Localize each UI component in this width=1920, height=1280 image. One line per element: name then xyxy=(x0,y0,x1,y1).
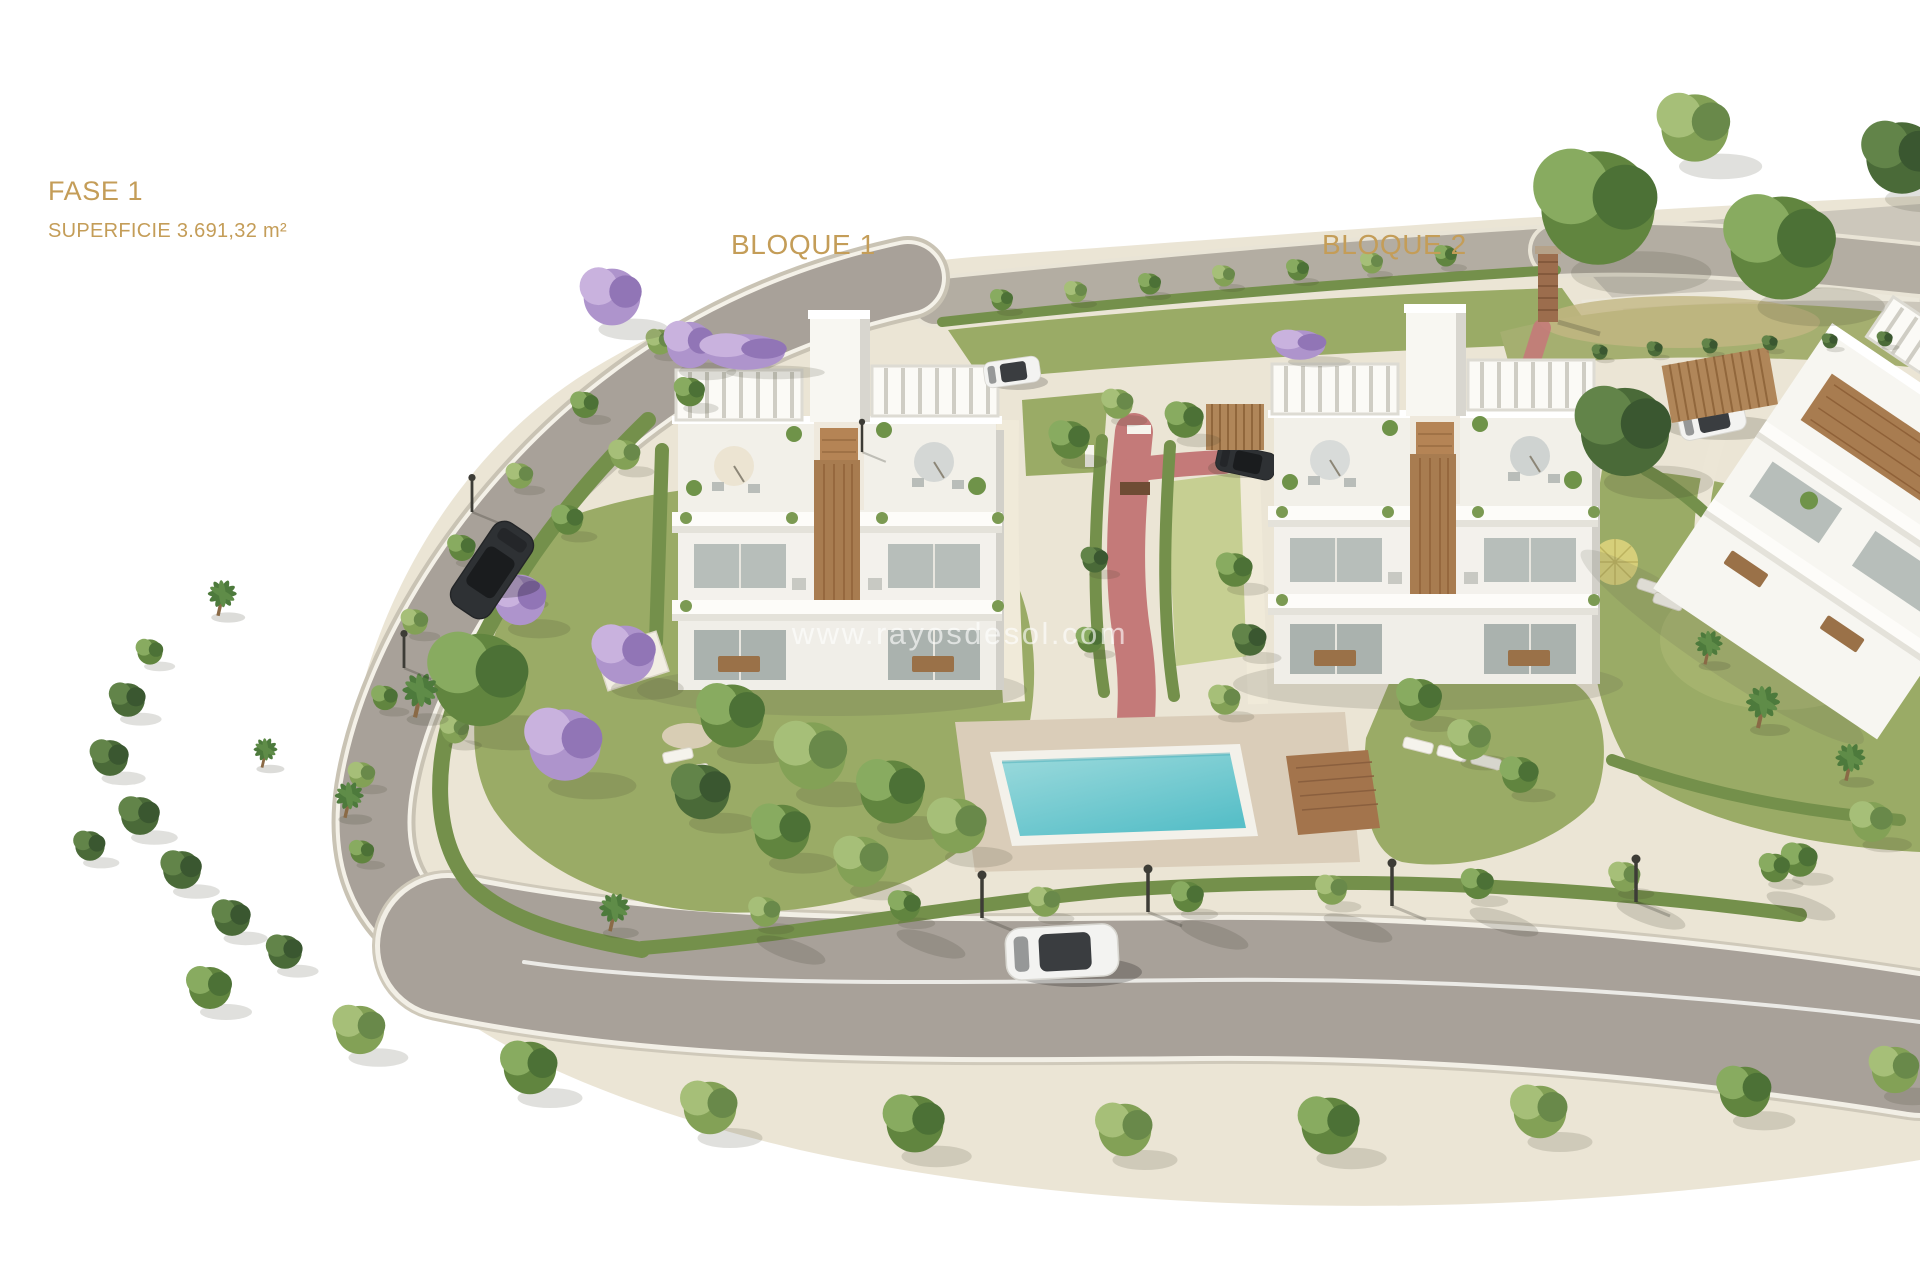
communal-pool xyxy=(955,712,1380,872)
building-block-2 xyxy=(1233,304,1623,710)
pool-water xyxy=(1002,754,1246,836)
site-plan-render: FASE 1 SUPERFICIE 3.691,32 m² BLOQUE 1 B… xyxy=(0,0,1920,1280)
watermark: www.rayosdesol.com xyxy=(792,616,1128,652)
surface-area-label: SUPERFICIE 3.691,32 m² xyxy=(48,220,287,243)
phase-label: FASE 1 xyxy=(48,176,143,207)
block1-label: BLOQUE 1 xyxy=(731,229,876,261)
block2-label: BLOQUE 2 xyxy=(1322,229,1467,261)
